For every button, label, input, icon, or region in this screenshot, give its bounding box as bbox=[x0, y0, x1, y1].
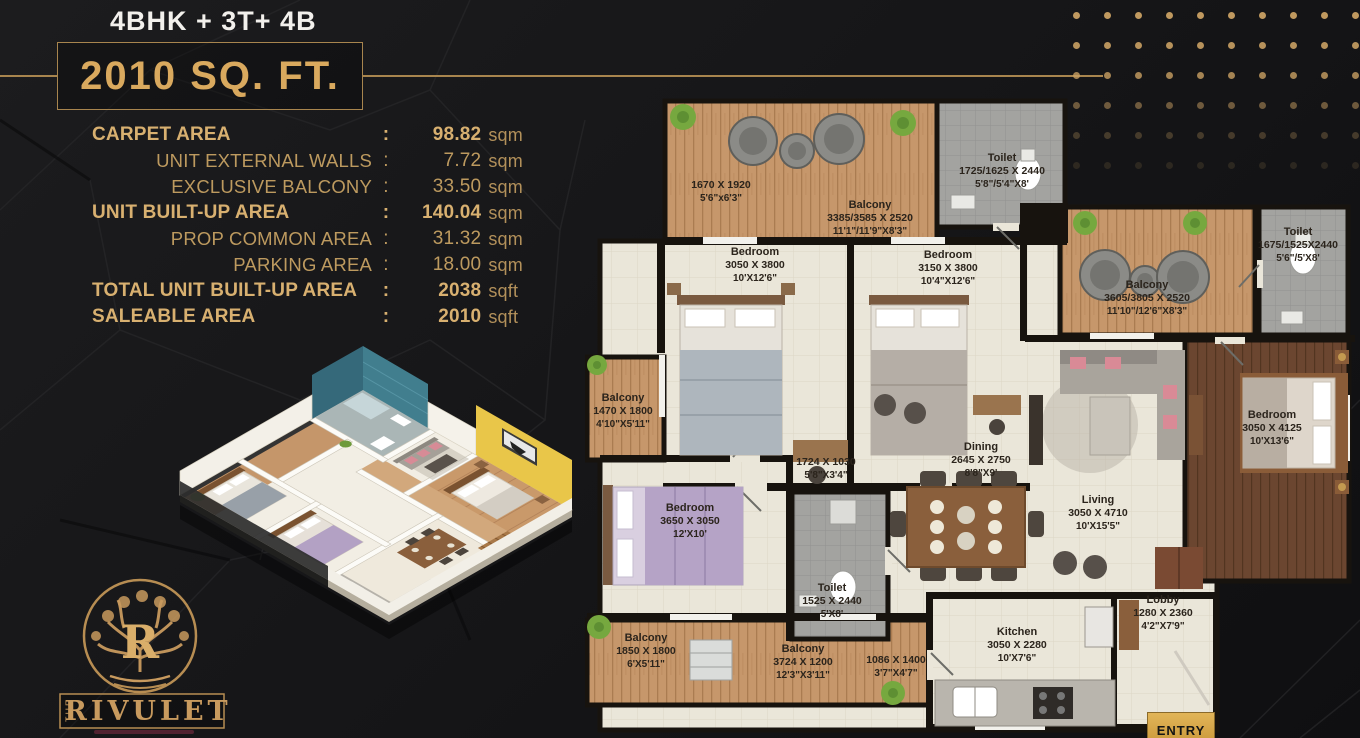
area-row: UNIT EXTERNAL WALLS:7.72sqm bbox=[92, 148, 536, 174]
room-label: Bedroom3050 X 412510'X13'6" bbox=[1242, 409, 1302, 448]
decor-dot bbox=[1228, 12, 1235, 19]
area-row: EXCLUSIVE BALCONY:33.50sqm bbox=[92, 174, 536, 200]
area-row: CARPET AREA:98.82sqm bbox=[92, 122, 536, 148]
decor-dot bbox=[1135, 72, 1142, 79]
floorplan-2d: 1670 X 19205'6"x6'3"Balcony3385/3585 X 2… bbox=[585, 95, 1360, 738]
logo-wordmark: RIVULET bbox=[64, 696, 231, 727]
decor-dot bbox=[1290, 72, 1297, 79]
room-label: Toilet1675/1525X24405'6"/5'X8' bbox=[1258, 226, 1338, 265]
configuration-title: 4BHK + 3T+ 4B bbox=[110, 6, 317, 37]
decor-dot bbox=[1321, 42, 1328, 49]
room-label: Balcony1470 X 18004'10"X5'11" bbox=[593, 392, 653, 431]
logo-tagline bbox=[94, 730, 194, 734]
decor-dot bbox=[1073, 42, 1080, 49]
decor-dot bbox=[1197, 12, 1204, 19]
decor-dot bbox=[1352, 72, 1359, 79]
decor-dot bbox=[1290, 12, 1297, 19]
decor-dot bbox=[1197, 42, 1204, 49]
area-badge: 2010 SQ. FT. bbox=[57, 42, 363, 110]
room-label: Bedroom3650 X 305012'X10' bbox=[660, 502, 720, 541]
room-label: Bedroom3050 X 380010'X12'6" bbox=[725, 246, 785, 285]
room-label: 1670 X 19205'6"x6'3" bbox=[691, 179, 751, 205]
decor-dot bbox=[1104, 12, 1111, 19]
room-label: Balcony3724 X 120012'3"X3'11" bbox=[773, 643, 833, 682]
room-labels-layer: 1670 X 19205'6"x6'3"Balcony3385/3585 X 2… bbox=[585, 95, 1360, 738]
decor-dot bbox=[1290, 42, 1297, 49]
area-row: PROP COMMON AREA:31.32sqm bbox=[92, 226, 536, 252]
decor-dot bbox=[1321, 12, 1328, 19]
room-label: Living3050 X 471010'X15'5" bbox=[1068, 494, 1128, 533]
decor-line-left bbox=[0, 75, 57, 77]
logo-monogram: R bbox=[121, 615, 160, 669]
decor-dot bbox=[1228, 42, 1235, 49]
room-label: Kitchen3050 X 228010'X7'6" bbox=[987, 626, 1047, 665]
area-statement-table: CARPET AREA:98.82sqmUNIT EXTERNAL WALLS:… bbox=[92, 122, 536, 330]
room-label: Dining2645 X 27508'8"X9' bbox=[951, 441, 1011, 480]
entry-label: ENTRY bbox=[1147, 712, 1215, 738]
decor-dot bbox=[1352, 42, 1359, 49]
decor-dot bbox=[1321, 72, 1328, 79]
room-label: Balcony3605/3805 X 252011'10"/12'6"X8'3" bbox=[1104, 279, 1190, 318]
decor-dot bbox=[1166, 42, 1173, 49]
decor-dot bbox=[1259, 42, 1266, 49]
room-label: Balcony3385/3585 X 252011'1"/11'9"X8'3" bbox=[827, 199, 913, 238]
decor-dot bbox=[1352, 12, 1359, 19]
decor-dot bbox=[1104, 42, 1111, 49]
brochure-page: { "header": { "config_title": "4BHK + 3T… bbox=[0, 0, 1360, 738]
brand-logo: R THE RIVULET bbox=[52, 566, 232, 738]
room-label: Bedroom3150 X 380010'4"X12'6" bbox=[918, 249, 978, 288]
room-label: Balcony1850 X 18006'X5'11" bbox=[616, 632, 676, 671]
area-row: TOTAL UNIT BUILT-UP AREA:2038sqft bbox=[92, 278, 536, 304]
room-label: Toilet1525 X 24405'X8' bbox=[802, 582, 862, 621]
decor-dot bbox=[1073, 72, 1080, 79]
decor-dot bbox=[1166, 72, 1173, 79]
area-row: SALEABLE AREA:2010sqft bbox=[92, 304, 536, 330]
decor-dot bbox=[1073, 12, 1080, 19]
decor-dot bbox=[1166, 12, 1173, 19]
area-row: UNIT BUILT-UP AREA:140.04sqm bbox=[92, 200, 536, 226]
decor-dot bbox=[1135, 12, 1142, 19]
decor-dot bbox=[1104, 72, 1111, 79]
decor-dot bbox=[1197, 72, 1204, 79]
decor-dot bbox=[1135, 42, 1142, 49]
area-row: PARKING AREA:18.00sqm bbox=[92, 252, 536, 278]
decor-dot bbox=[1228, 72, 1235, 79]
decor-dot bbox=[1259, 12, 1266, 19]
room-label: 1724 X 10305'8"X3'4" bbox=[796, 456, 856, 482]
room-label: 1086 X 14003'7"X4'7" bbox=[866, 654, 926, 680]
room-label: Toilet1725/1625 X 24405'8"/5'4"X8' bbox=[959, 152, 1045, 191]
decor-dot bbox=[1259, 72, 1266, 79]
room-label: Lobby1280 X 23604'2"X7'9" bbox=[1133, 594, 1193, 633]
decor-line-right bbox=[362, 75, 1103, 77]
